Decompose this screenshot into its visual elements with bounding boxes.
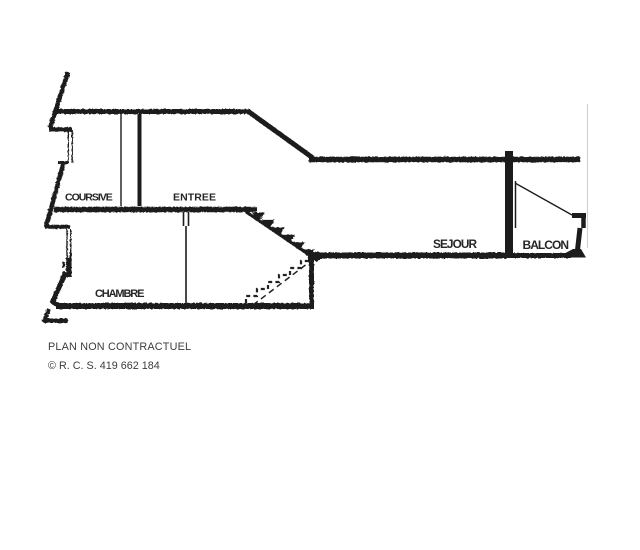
svg-text:SEJOUR: SEJOUR <box>433 237 478 251</box>
svg-text:COURSIVE: COURSIVE <box>65 192 113 204</box>
svg-text:ENTREE: ENTREE <box>173 192 217 204</box>
svg-text:CHAMBRE: CHAMBRE <box>95 288 145 300</box>
svg-text:BALCON: BALCON <box>523 238 570 252</box>
